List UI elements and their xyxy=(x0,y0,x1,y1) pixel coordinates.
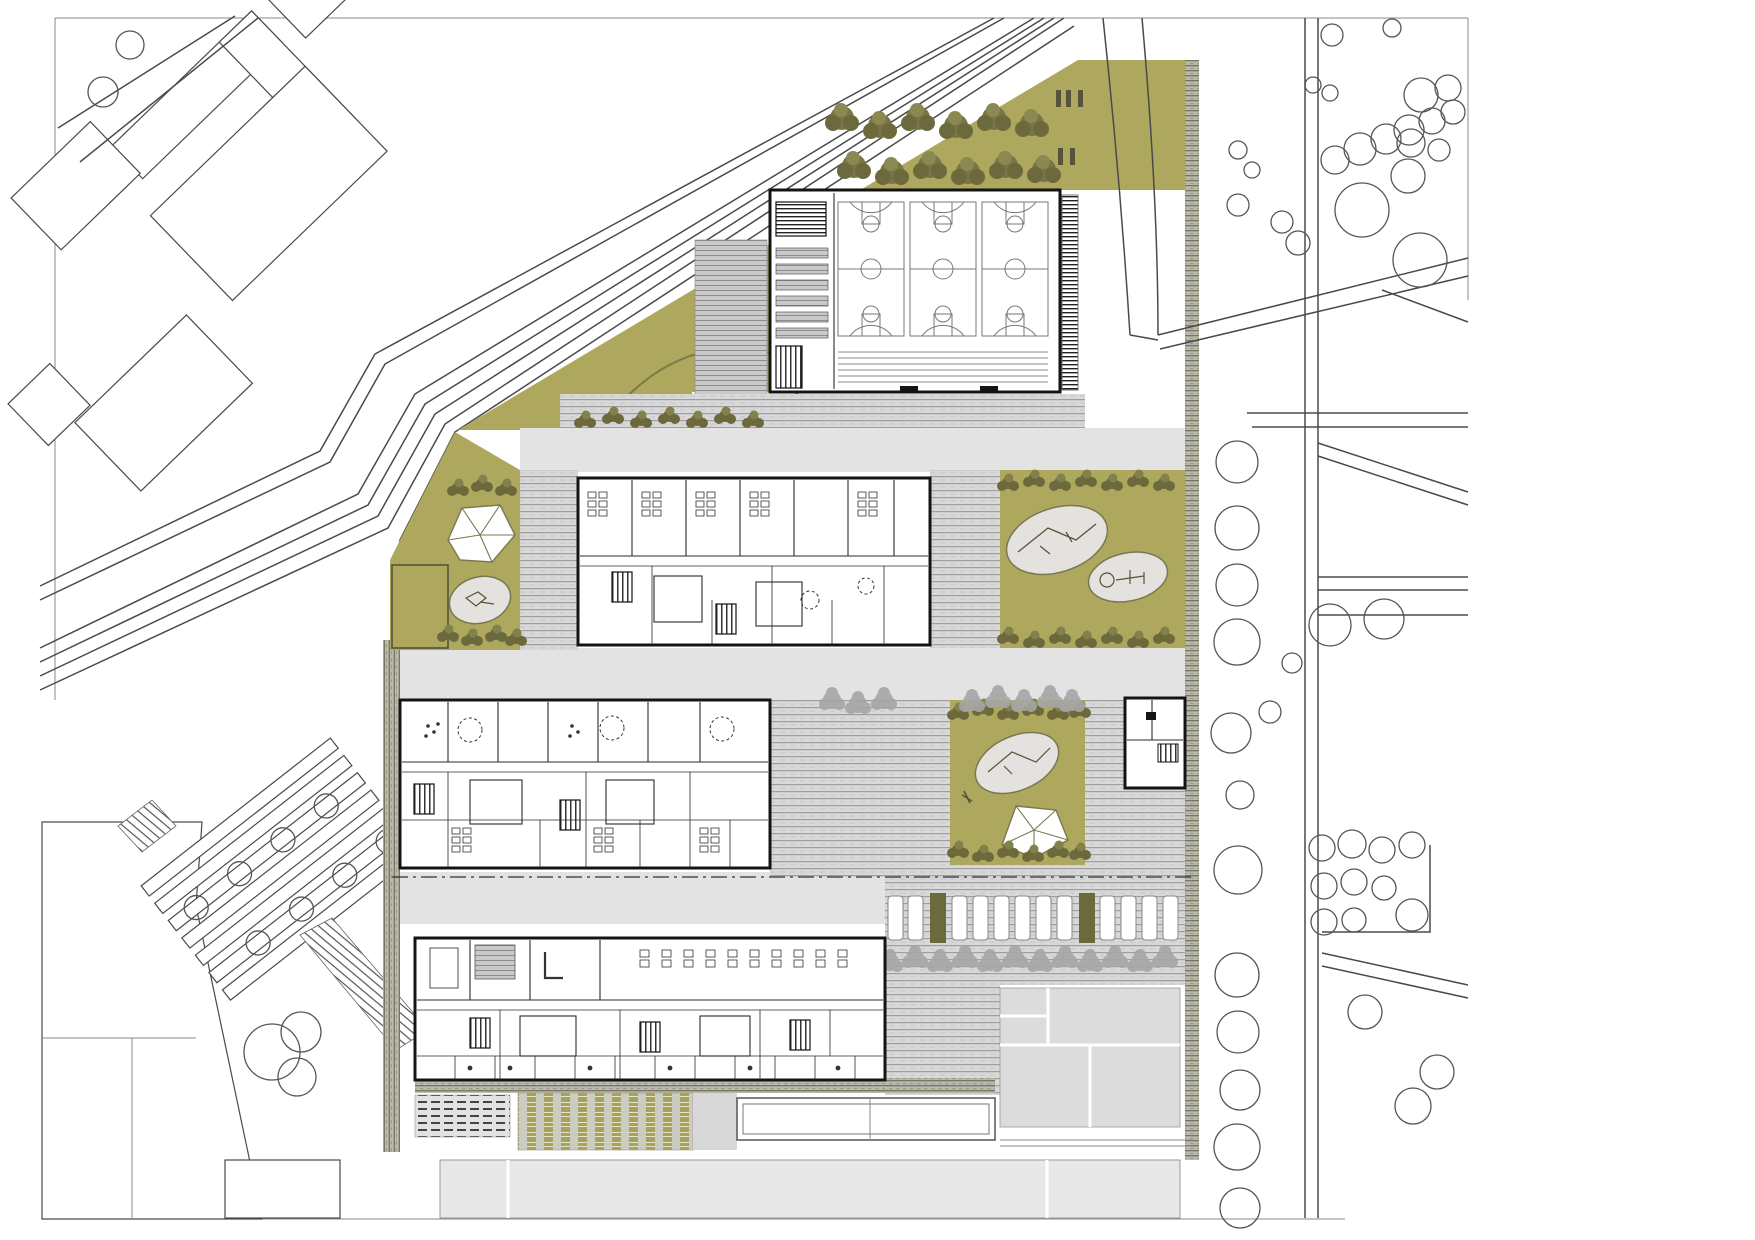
context-northwest-blocks xyxy=(8,0,499,515)
planting-strip xyxy=(1079,893,1095,943)
park-trees xyxy=(1271,19,1465,1124)
paving-band xyxy=(520,470,578,650)
ramp-hatch xyxy=(300,918,428,1050)
sports-hall xyxy=(770,190,1060,392)
context-block-group xyxy=(8,272,252,515)
basketball-court xyxy=(838,202,904,336)
garden-beds xyxy=(518,1093,693,1150)
context-building xyxy=(75,315,252,491)
plaza-middle xyxy=(390,648,1185,700)
playground-west xyxy=(390,432,527,650)
stair-icon xyxy=(1158,744,1178,762)
basketball-court xyxy=(982,202,1048,336)
school-building-top xyxy=(578,478,930,645)
paving-patch xyxy=(693,1093,737,1150)
basketball-court xyxy=(910,202,976,336)
stair-icon xyxy=(776,202,826,236)
bike-parking xyxy=(415,1095,510,1137)
west-edge-planting xyxy=(383,640,400,1152)
entrance-mark xyxy=(900,386,918,392)
entrance-mark xyxy=(980,386,998,392)
site-plan-drawing xyxy=(0,0,1755,1240)
paving-band xyxy=(930,470,1000,648)
park-paths xyxy=(1247,413,1468,998)
street-tree-icon xyxy=(116,31,144,59)
context-tree-trio xyxy=(244,1012,321,1096)
context-strip-south xyxy=(225,1160,340,1218)
kindergarten-pavilion xyxy=(1125,698,1185,788)
tree-icon xyxy=(281,1012,321,1052)
playground-east-lower xyxy=(947,699,1091,866)
stair-icon xyxy=(776,346,802,388)
context-building-gray xyxy=(8,364,90,446)
parking-stall xyxy=(888,896,903,940)
parking-lot xyxy=(877,893,1178,972)
outdoor-stair xyxy=(1062,195,1078,390)
east-edge-planting xyxy=(1185,60,1199,1160)
core-mark xyxy=(1146,712,1156,720)
school-building-middle xyxy=(400,700,770,868)
tree-icon xyxy=(244,1024,300,1080)
orchard-grid xyxy=(1309,830,1428,935)
site-plan-canvas xyxy=(0,0,1755,1240)
planting-strip xyxy=(930,893,946,943)
context-block-group xyxy=(78,0,499,301)
context-strip-south xyxy=(440,1160,1180,1218)
plaza-upper xyxy=(520,428,1185,472)
school-building-bottom xyxy=(415,938,885,1080)
sidewalk-tree-row xyxy=(1211,141,1302,1228)
context-southwest xyxy=(42,738,428,1219)
playground-east-upper xyxy=(997,470,1185,649)
